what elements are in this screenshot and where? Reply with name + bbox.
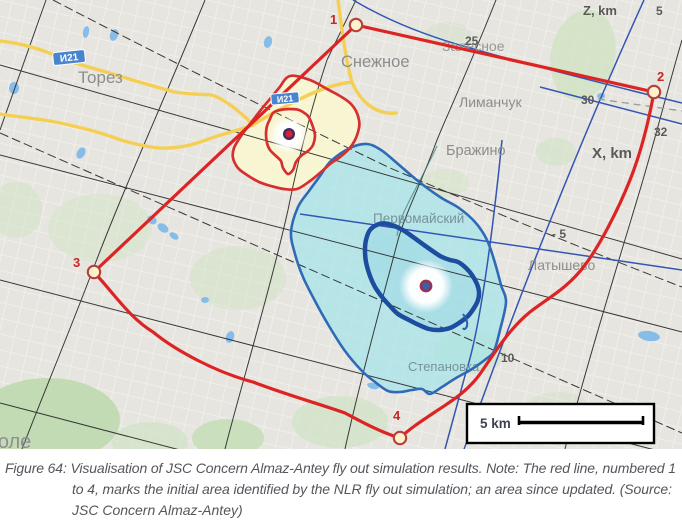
svg-text:25: 25 <box>465 34 479 48</box>
svg-text:2: 2 <box>657 69 664 84</box>
svg-text:И21: И21 <box>276 93 293 104</box>
svg-text:Figure 64: Visualisation of JS: Figure 64: Visualisation of JSC Concern … <box>5 460 676 476</box>
svg-text:- 5: - 5 <box>552 227 566 241</box>
svg-text:И21: И21 <box>59 52 79 65</box>
svg-text:10: 10 <box>501 351 515 365</box>
svg-text:5: 5 <box>656 4 663 18</box>
svg-text:Торез: Торез <box>78 68 123 87</box>
svg-text:Снежное: Снежное <box>341 53 410 71</box>
svg-text:Z, km: Z, km <box>583 3 617 18</box>
svg-text:Бражино: Бражино <box>446 143 506 159</box>
svg-text:30: 30 <box>581 93 595 107</box>
svg-text:поле: поле <box>0 431 31 453</box>
svg-text:1: 1 <box>330 12 337 27</box>
svg-text:JSC Concern Almaz-Antey): JSC Concern Almaz-Antey) <box>71 502 243 518</box>
svg-text:Лиманчук: Лиманчук <box>459 94 522 110</box>
svg-text:X, km: X, km <box>592 145 632 162</box>
svg-text:32: 32 <box>654 125 668 139</box>
svg-text:4: 4 <box>393 408 401 423</box>
svg-text:3: 3 <box>73 255 80 270</box>
svg-text:to 4, marks the initial area i: to 4, marks the initial area identified … <box>72 481 672 497</box>
svg-text:5 km: 5 km <box>480 416 511 431</box>
